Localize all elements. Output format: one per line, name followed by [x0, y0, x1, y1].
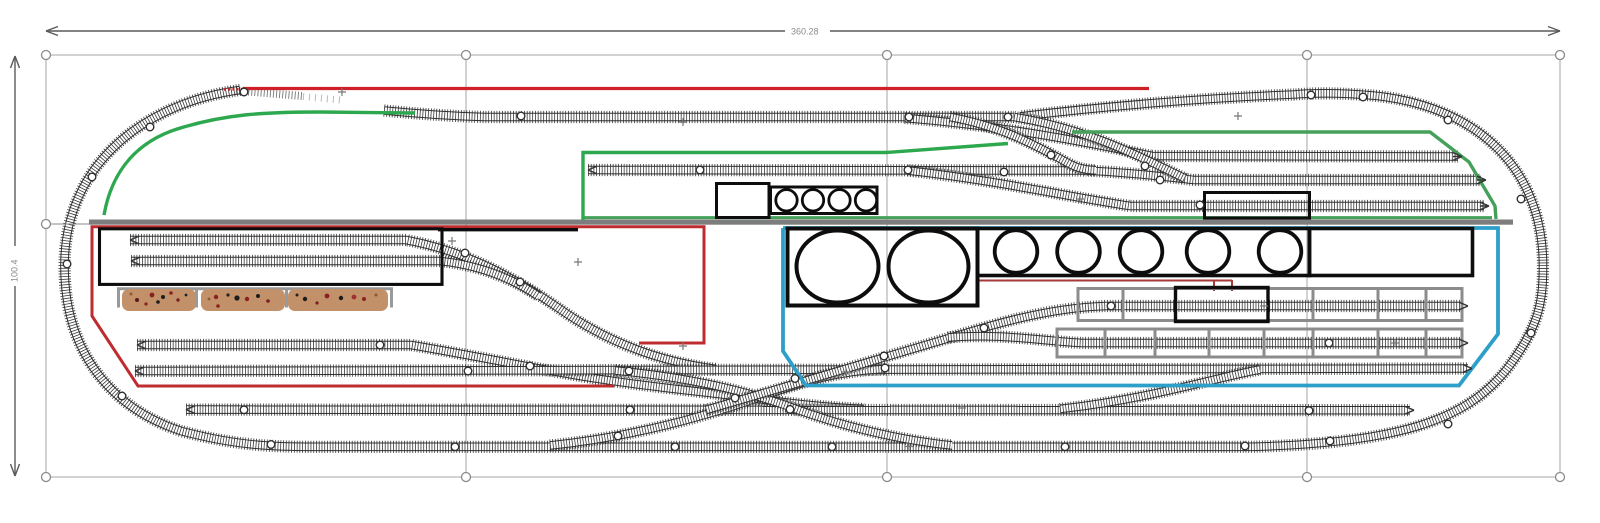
svg-text:100.4: 100.4 [10, 259, 20, 282]
svg-text:360.28: 360.28 [791, 27, 819, 37]
